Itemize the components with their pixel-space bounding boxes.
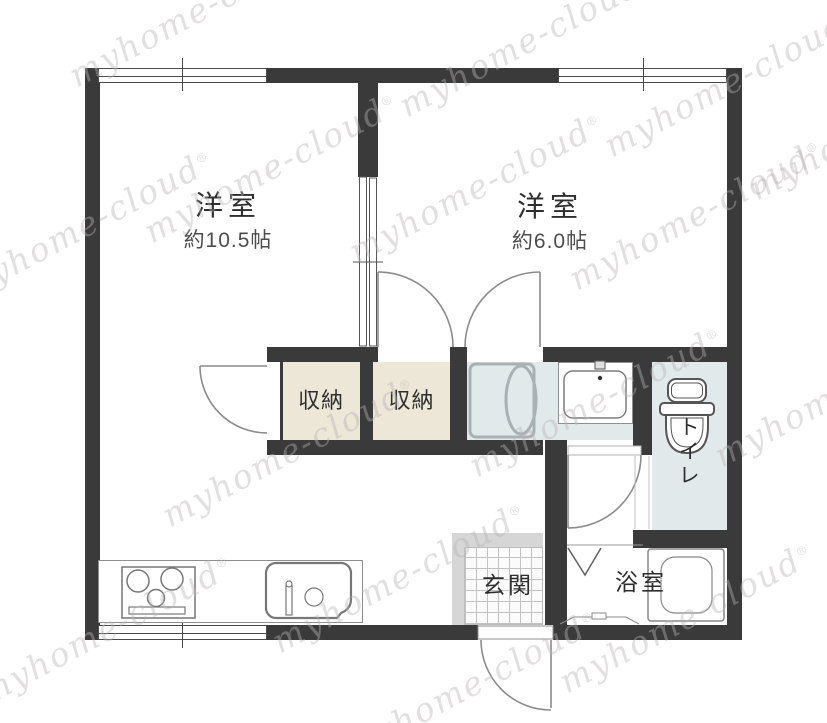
- window-top-left-tick: [182, 58, 183, 91]
- door-closet-ldk: [200, 366, 267, 433]
- door-double-bedroom: [378, 272, 540, 347]
- bathroom-label: 浴室: [595, 570, 687, 595]
- wall-right: [727, 68, 742, 640]
- window-top-right-tick: [643, 58, 644, 91]
- wall-left: [85, 68, 100, 640]
- wall-bath-top: [643, 533, 742, 548]
- toilet-doorway: [635, 456, 649, 529]
- entrance-label: 玄関: [463, 573, 553, 598]
- watermark: myhome-cloud®: [392, 0, 660, 125]
- toilet-label: トイレ: [676, 402, 699, 502]
- wall-closet-top: [267, 347, 378, 362]
- floorplan: 洋室 約10.5帖 洋室 約6.0帖 収納 収納 トイレ 玄関 浴室 myhom…: [0, 0, 827, 723]
- wall-closet-washer: [450, 347, 467, 455]
- door-washroom: [568, 446, 641, 528]
